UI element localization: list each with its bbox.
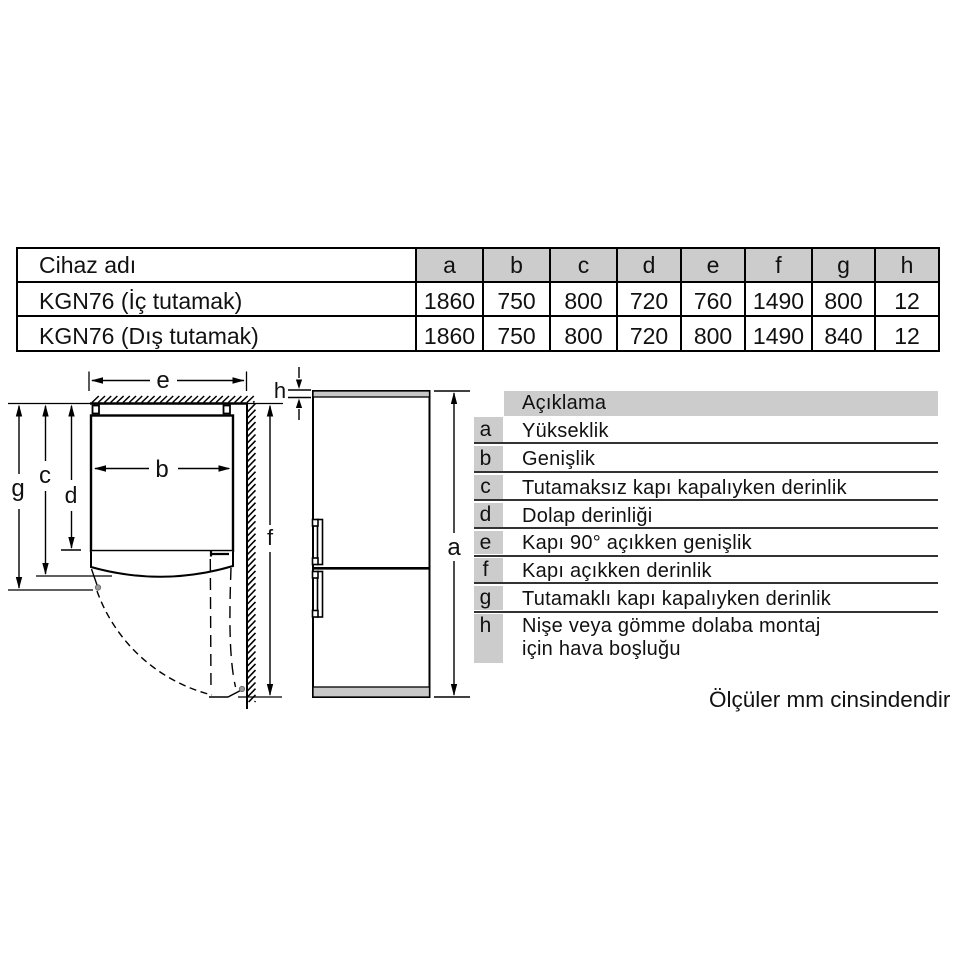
svg-text:e: e [156, 367, 169, 394]
svg-text:b: b [155, 456, 168, 483]
svg-text:d: d [65, 482, 78, 508]
svg-text:a: a [447, 534, 461, 561]
svg-text:f: f [267, 525, 274, 550]
svg-text:g: g [11, 475, 24, 502]
svg-text:h: h [274, 378, 286, 403]
svg-text:c: c [39, 462, 51, 489]
